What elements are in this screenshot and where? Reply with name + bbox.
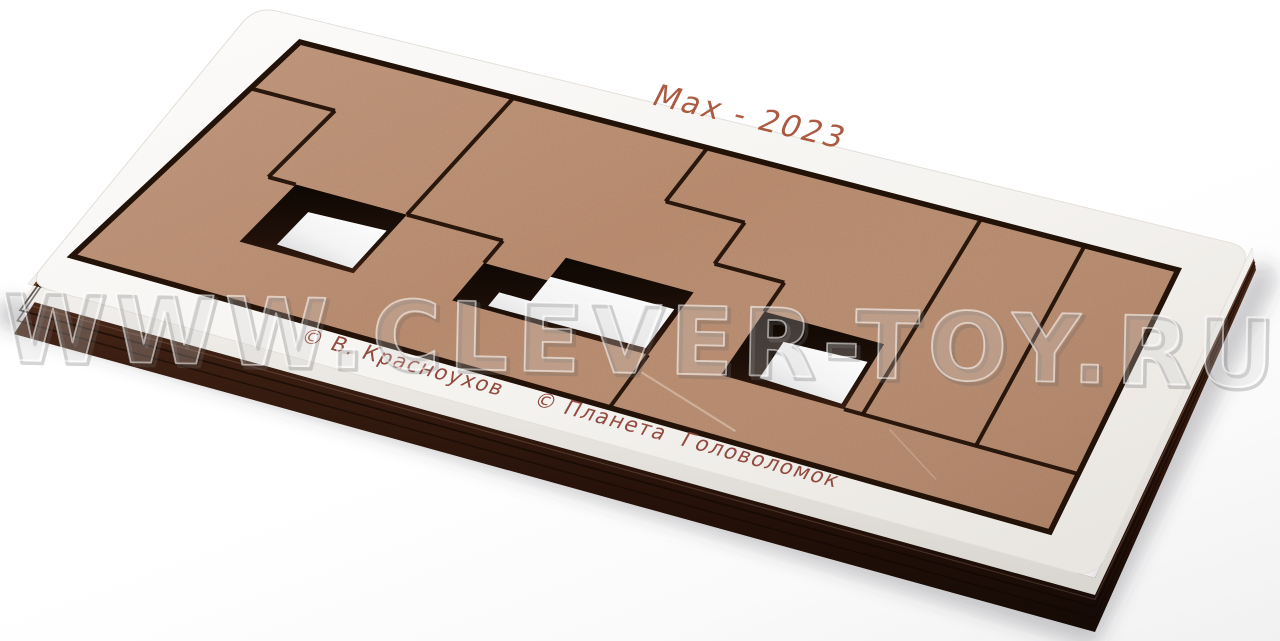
product-photo: Max - 2023 © В. Красноухов © Планета Гол… bbox=[0, 0, 1280, 641]
wooden-puzzle-photo: Max - 2023 © В. Красноухов © Планета Гол… bbox=[0, 0, 1280, 641]
